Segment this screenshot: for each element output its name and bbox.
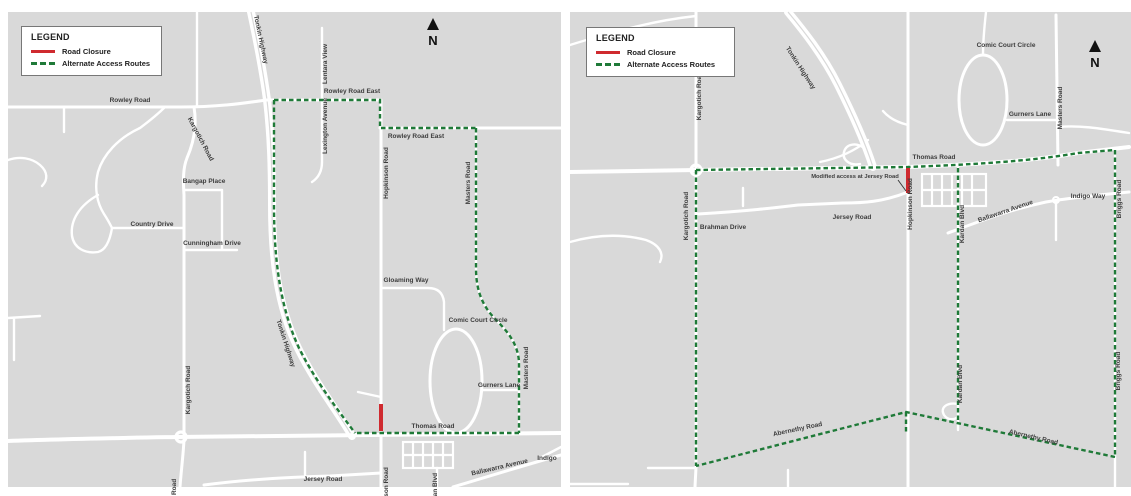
legend-right: LEGEND Road Closure Alternate Access Rou… bbox=[586, 27, 735, 77]
label-hopkinson-road: Hopkinson Road bbox=[383, 467, 390, 496]
svg-text:N: N bbox=[428, 33, 437, 48]
label-briggs-road: Briggs Road bbox=[1116, 180, 1123, 219]
label-jersey-road: Jersey Road bbox=[304, 476, 343, 483]
legend-title: LEGEND bbox=[31, 32, 153, 42]
label-comic-court-circle: Comic Court Circle bbox=[449, 317, 508, 324]
label-rowley-road-east: Rowley Road East bbox=[324, 88, 381, 95]
label-hopkinson-road: Hopkinson Road bbox=[383, 147, 390, 199]
map-background bbox=[8, 12, 561, 487]
label-kardan-blvd: Kardan Blvd bbox=[959, 205, 966, 243]
label-comic-court-circle: Comic Court Circle bbox=[977, 42, 1036, 49]
label-indigo: Indigo bbox=[537, 455, 557, 462]
label-kardan-blvd: Kardan Blvd bbox=[957, 365, 964, 403]
label-masters-road: Masters Road bbox=[1057, 87, 1064, 130]
legend-alternate-label: Alternate Access Routes bbox=[62, 59, 150, 68]
label-lexington-avenue: Lexington Avenue bbox=[322, 98, 329, 154]
legend-road-closure-label: Road Closure bbox=[627, 48, 676, 57]
legend-item-alternate: Alternate Access Routes bbox=[596, 60, 726, 69]
legend-item-alternate: Alternate Access Routes bbox=[31, 59, 153, 68]
label-kargotich-road: Kargotich Road bbox=[683, 192, 690, 240]
label-masters-road: Masters Road bbox=[523, 347, 530, 390]
road-closure-swatch-icon bbox=[596, 51, 620, 54]
road-closure-swatch-icon bbox=[31, 50, 55, 53]
label-modified-access-note: Modified access at Jersey Road bbox=[811, 174, 899, 180]
legend-title: LEGEND bbox=[596, 33, 726, 43]
road-closure-maps: LEGEND Road Closure Alternate Access Rou… bbox=[0, 0, 1131, 496]
label-thomas-road: Thomas Road bbox=[412, 423, 455, 430]
label-gurners-lane: Gurners Lane bbox=[478, 382, 521, 389]
label-brahman-drive: Brahman Drive bbox=[700, 224, 747, 231]
label-cunningham-drive: Cunningham Drive bbox=[183, 240, 241, 247]
label-gurners-lane: Gurners Lane bbox=[1009, 111, 1052, 118]
label-country-drive: Country Drive bbox=[131, 221, 174, 228]
label-masters-road: Masters Road bbox=[465, 162, 472, 205]
legend-left: LEGEND Road Closure Alternate Access Rou… bbox=[21, 26, 162, 76]
label-rowley-road: Rowley Road bbox=[110, 97, 151, 104]
alternate-route-swatch-icon bbox=[31, 62, 55, 65]
legend-item-road-closure: Road Closure bbox=[596, 48, 726, 57]
legend-road-closure-label: Road Closure bbox=[62, 47, 111, 56]
label-kardan-blvd: Kardan Blvd bbox=[432, 473, 439, 496]
alternate-route-swatch-icon bbox=[596, 63, 620, 66]
svg-text:N: N bbox=[1090, 55, 1099, 70]
label-kargotich-road: Kargotich Road bbox=[171, 479, 178, 496]
label-hopkinson-road: Hopkinson Road bbox=[907, 178, 914, 230]
label-bangap-place: Bangap Place bbox=[183, 178, 226, 185]
label-indigo-way: Indigo Way bbox=[1071, 193, 1106, 200]
label-kargotich-road: Kargotich Road bbox=[185, 366, 192, 414]
legend-alternate-label: Alternate Access Routes bbox=[627, 60, 715, 69]
right-map-panel: LEGEND Road Closure Alternate Access Rou… bbox=[568, 0, 1131, 496]
label-gloaming-way: Gloaming Way bbox=[384, 277, 429, 284]
left-map-panel: LEGEND Road Closure Alternate Access Rou… bbox=[0, 0, 563, 496]
label-thomas-road: Thomas Road bbox=[913, 154, 956, 161]
label-jersey-road: Jersey Road bbox=[833, 214, 872, 221]
label-rowley-road-east: Rowley Road East bbox=[388, 133, 445, 140]
legend-item-road-closure: Road Closure bbox=[31, 47, 153, 56]
map-background bbox=[570, 12, 1131, 487]
label-briggs-road: Briggs Road bbox=[1115, 352, 1122, 391]
label-kargotich-road: Kargotich Road bbox=[696, 72, 703, 120]
label-lentara-view: Lentara View bbox=[322, 43, 329, 84]
